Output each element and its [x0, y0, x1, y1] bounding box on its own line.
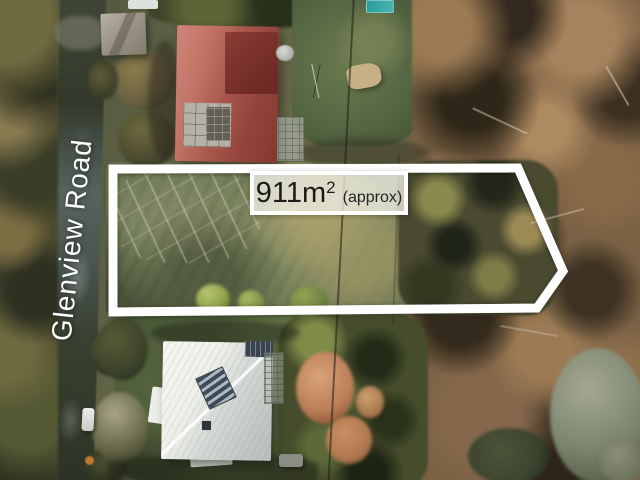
- aerial-property-photo: 911m2(approx) Glenview Road: [0, 0, 640, 480]
- area-superscript: 2: [326, 178, 335, 197]
- area-label: 911m2(approx): [250, 171, 408, 215]
- property-boundary-outline: [0, 0, 640, 480]
- area-value: 911m: [256, 177, 326, 209]
- area-text: 911m2(approx): [256, 179, 402, 208]
- area-qualifier: (approx): [343, 189, 403, 206]
